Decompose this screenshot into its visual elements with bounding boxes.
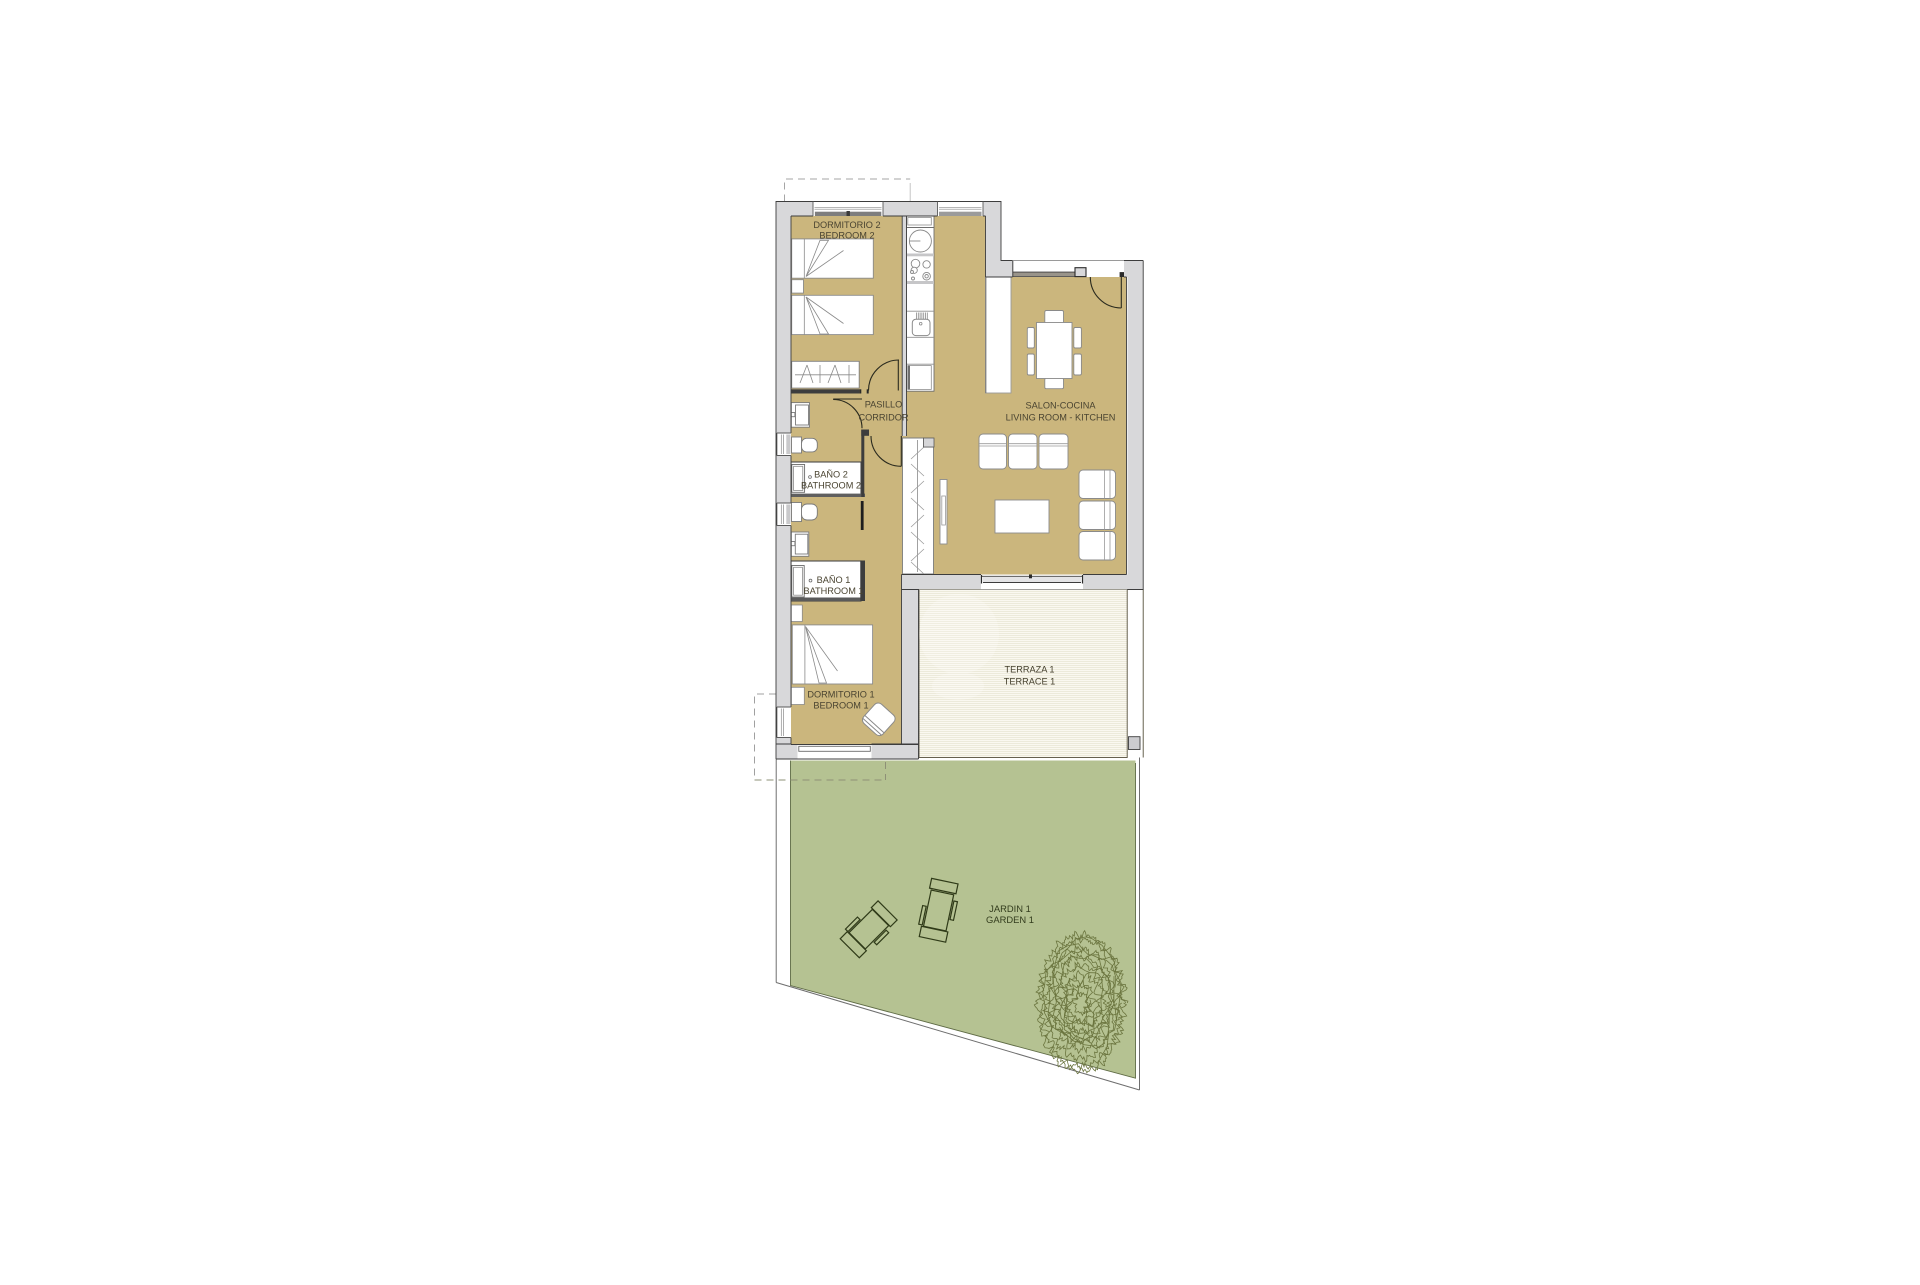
svg-text:BATHROOM 1: BATHROOM 1 bbox=[803, 586, 863, 596]
svg-text:BEDROOM 1: BEDROOM 1 bbox=[813, 700, 868, 710]
svg-text:CORRIDOR: CORRIDOR bbox=[858, 413, 908, 423]
svg-text:LIVING ROOM - KITCHEN: LIVING ROOM - KITCHEN bbox=[1006, 413, 1116, 423]
svg-text:DORMITORIO 2: DORMITORIO 2 bbox=[813, 220, 880, 230]
svg-text:BEDROOM 2: BEDROOM 2 bbox=[819, 230, 874, 240]
svg-text:TERRAZA 1: TERRAZA 1 bbox=[1004, 665, 1054, 675]
svg-text:SALON-COCINA: SALON-COCINA bbox=[1026, 401, 1097, 411]
svg-text:BATHROOM 2: BATHROOM 2 bbox=[801, 480, 861, 490]
svg-text:BAÑO 2: BAÑO 2 bbox=[814, 469, 848, 479]
svg-text:PASILLO: PASILLO bbox=[865, 400, 903, 410]
svg-text:JARDIN 1: JARDIN 1 bbox=[989, 903, 1031, 914]
svg-text:TERRACE 1: TERRACE 1 bbox=[1004, 677, 1056, 687]
svg-text:GARDEN 1: GARDEN 1 bbox=[986, 914, 1034, 925]
svg-text:BAÑO 1: BAÑO 1 bbox=[817, 575, 851, 585]
svg-text:DORMITORIO 1: DORMITORIO 1 bbox=[807, 690, 874, 700]
